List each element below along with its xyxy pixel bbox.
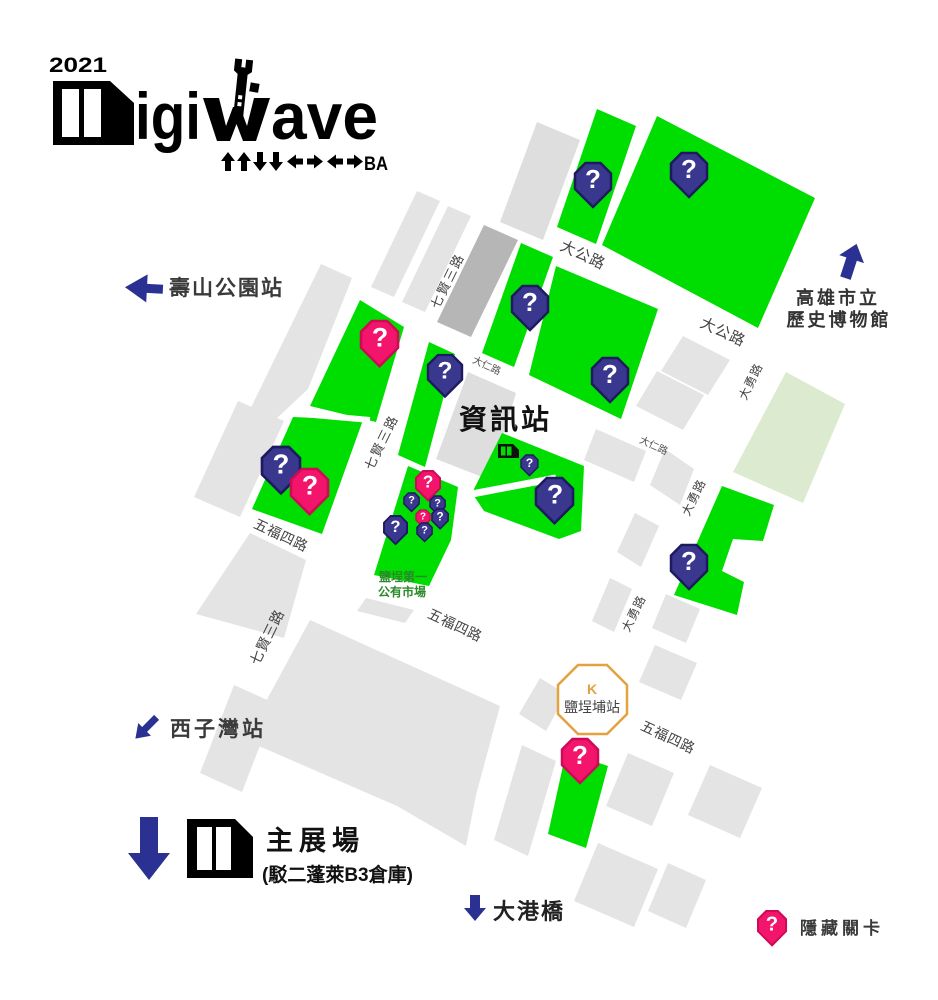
svg-text:?: ? [437,510,444,523]
svg-text:歷史博物館: 歷史博物館 [787,309,892,330]
svg-text:?: ? [766,914,778,936]
svg-text:?: ? [408,495,415,507]
svg-text:隱藏關卡: 隱藏關卡 [800,918,884,938]
svg-text:igi: igi [135,79,201,153]
svg-text:主展場: 主展場 [266,826,365,856]
svg-text:?: ? [438,358,453,385]
svg-text:?: ? [420,512,426,523]
svg-text:?: ? [526,456,534,470]
svg-text:?: ? [423,472,434,492]
svg-text:ave: ave [271,79,378,153]
svg-text:西子灣站: 西子灣站 [170,717,266,741]
svg-text:(駁二蓬萊B3倉庫): (駁二蓬萊B3倉庫) [262,863,413,886]
svg-text:?: ? [585,164,601,194]
svg-text:資訊站: 資訊站 [459,403,552,435]
svg-text:?: ? [273,448,290,479]
svg-text:?: ? [522,287,538,317]
svg-text:?: ? [602,359,618,389]
svg-text:公有市場: 公有市場 [378,584,426,599]
svg-text:鹽埕第一: 鹽埕第一 [379,569,427,584]
svg-text:?: ? [681,546,697,576]
svg-text:BA: BA [364,154,388,175]
svg-text:K: K [587,681,597,697]
svg-text:?: ? [434,498,441,510]
svg-text:壽山公園站: 壽山公園站 [169,276,284,300]
svg-text:2021: 2021 [49,54,107,77]
svg-text:?: ? [547,480,563,510]
svg-text:?: ? [390,517,400,536]
svg-text:鹽埕埔站: 鹽埕埔站 [564,699,620,715]
svg-text:?: ? [302,471,318,501]
svg-text:?: ? [372,323,388,353]
svg-text:大港橋: 大港橋 [493,899,565,924]
svg-text:?: ? [572,740,588,770]
svg-text:高雄市立: 高雄市立 [796,287,880,308]
svg-text:?: ? [681,154,697,184]
svg-text:?: ? [421,525,428,537]
